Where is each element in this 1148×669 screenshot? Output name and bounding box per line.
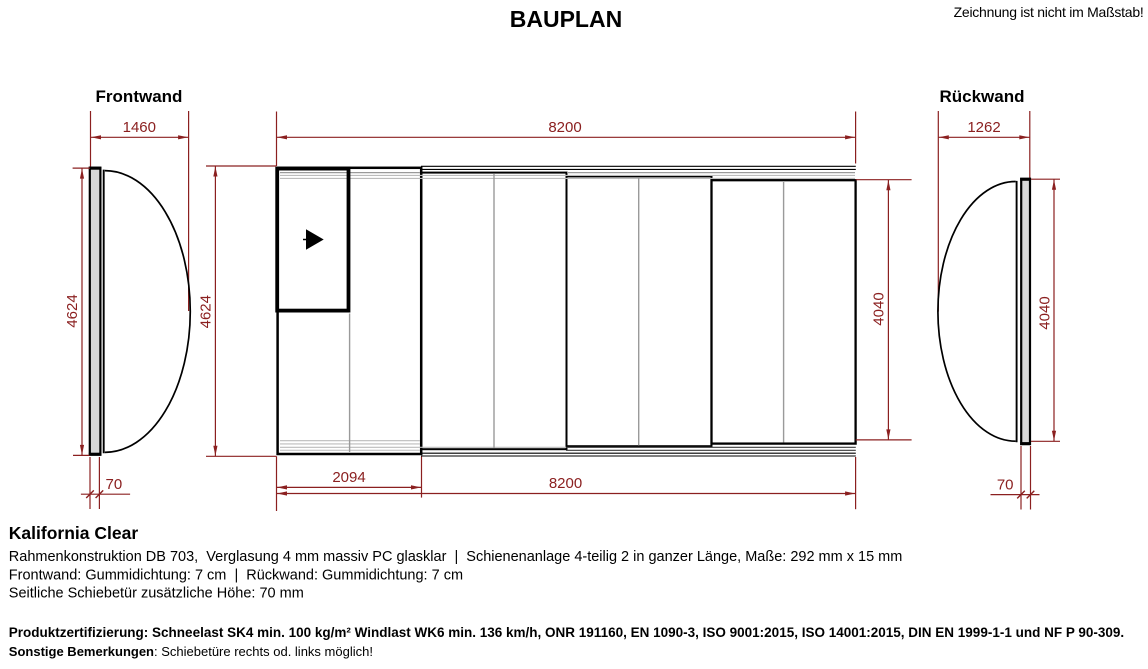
svg-text:4040: 4040: [1036, 296, 1053, 329]
svg-text:Seitliche Schiebetür zusätzlic: Seitliche Schiebetür zusätzliche Höhe: 7…: [9, 586, 304, 602]
svg-text:4624: 4624: [64, 294, 81, 327]
svg-text:Kalifornia Clear: Kalifornia Clear: [9, 523, 139, 543]
svg-text:Frontwand: Frontwand: [96, 87, 183, 106]
svg-text:4624: 4624: [198, 295, 215, 328]
svg-text:Produktzertifizierung: Schneel: Produktzertifizierung: Schneelast SK4 mi…: [9, 625, 1124, 640]
svg-text:BAUPLAN: BAUPLAN: [510, 6, 622, 32]
svg-text:Rückwand: Rückwand: [939, 87, 1024, 106]
svg-text:1460: 1460: [123, 119, 156, 136]
svg-text:Rahmenkonstruktion DB 703, Ve: Rahmenkonstruktion DB 703, Verglasung 4 …: [9, 549, 903, 565]
svg-text:Zeichnung ist nicht im Maßstab: Zeichnung ist nicht im Maßstab!: [954, 4, 1144, 20]
svg-text:Frontwand: Gummidichtung: 7 cm: Frontwand: Gummidichtung: 7 cm | Rückwan…: [9, 567, 463, 583]
svg-text:70: 70: [106, 476, 123, 493]
svg-text:8200: 8200: [548, 119, 581, 136]
svg-text:Sonstige Bemerkungen: Schiebet: Sonstige Bemerkungen: Schiebetüre rechts…: [9, 644, 373, 659]
svg-text:1262: 1262: [967, 119, 1000, 136]
svg-text:2094: 2094: [332, 469, 365, 486]
svg-text:70: 70: [997, 477, 1014, 494]
svg-text:4040: 4040: [871, 292, 888, 325]
svg-text:8200: 8200: [549, 475, 582, 492]
